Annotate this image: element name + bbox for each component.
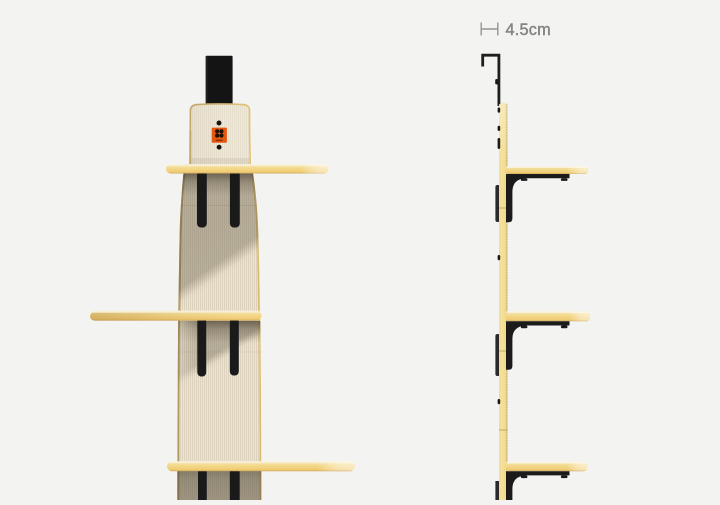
svg-text:4.5cm: 4.5cm	[506, 21, 551, 39]
